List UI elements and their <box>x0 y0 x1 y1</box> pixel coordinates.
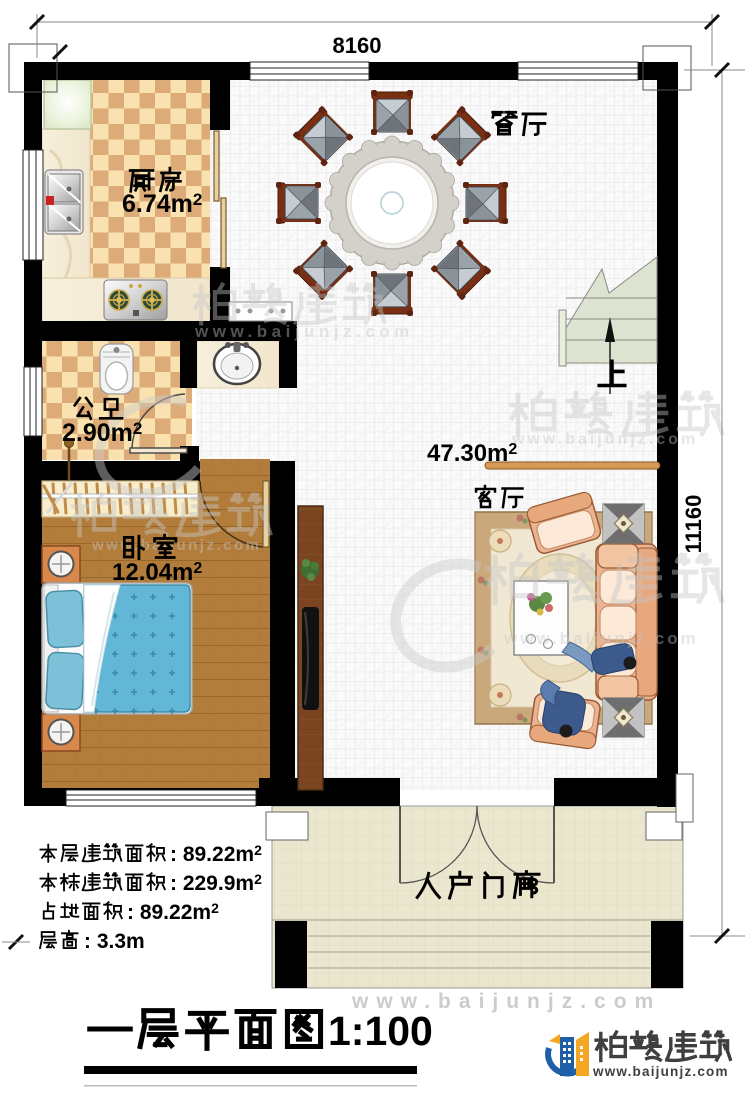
svg-text:www.baijunjz.com: www.baijunjz.com <box>503 629 699 648</box>
svg-text:12.04m2: 12.04m2 <box>112 559 202 586</box>
svg-text:www.baijunjz.com: www.baijunjz.com <box>592 1064 729 1079</box>
svg-text:1:100: 1:100 <box>328 1008 433 1054</box>
svg-text:: 89.22m2: : 89.22m2 <box>127 900 219 924</box>
svg-text:2.90m2: 2.90m2 <box>62 419 142 447</box>
svg-text:: 3.3m: : 3.3m <box>84 930 145 953</box>
svg-text:8160: 8160 <box>333 33 382 58</box>
svg-text:: 89.22m2: : 89.22m2 <box>170 842 262 866</box>
svg-text:www.baijunjz.com: www.baijunjz.com <box>194 322 414 341</box>
svg-text:www.baijunjz.com: www.baijunjz.com <box>511 431 698 448</box>
svg-text:: 229.9m2: : 229.9m2 <box>170 871 262 895</box>
svg-text:6.74m2: 6.74m2 <box>122 190 202 218</box>
svg-text:11160: 11160 <box>681 495 706 554</box>
